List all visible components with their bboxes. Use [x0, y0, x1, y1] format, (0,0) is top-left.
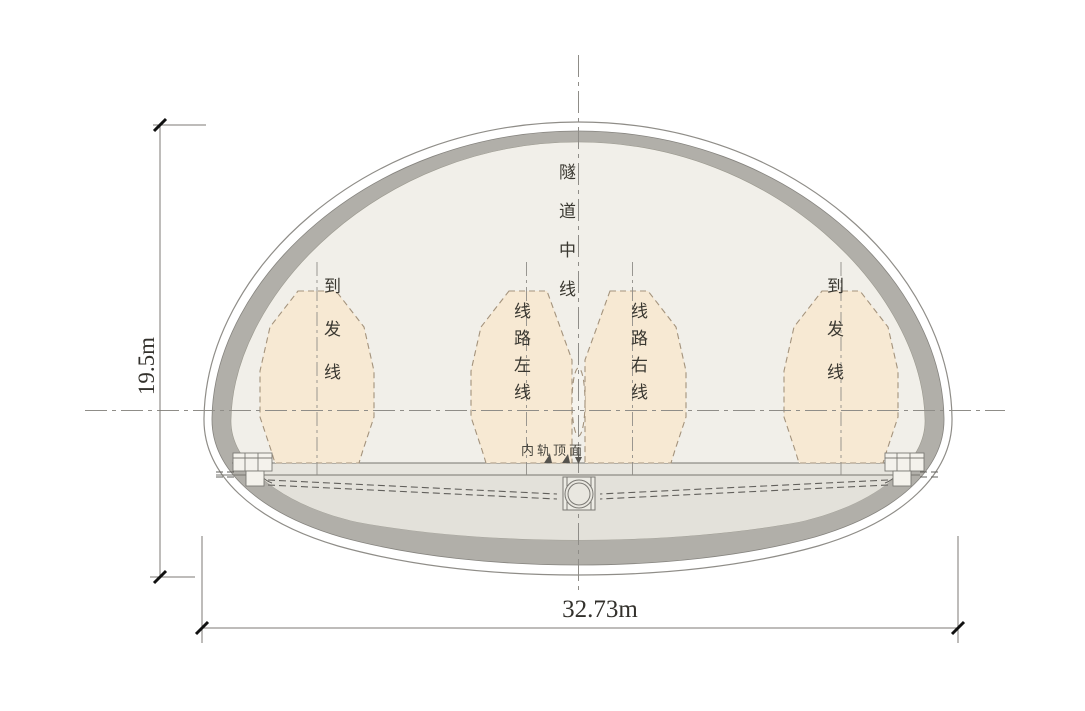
track-slab-band — [205, 463, 960, 475]
center-drain-pipe-outer — [565, 480, 593, 508]
tunnel-drawing — [0, 0, 1085, 711]
center-drain — [563, 477, 595, 510]
main-line-right-label: 线路右线 — [629, 302, 646, 410]
main-line-left-label: 线路左线 — [512, 302, 529, 410]
siding-track-right-label: 到发线 — [825, 277, 842, 406]
width-dimension-label: 32.73m — [545, 597, 655, 622]
rail-top-surface-label: 内轨顶面 — [521, 444, 585, 457]
siding-track-left-label: 到发线 — [322, 277, 339, 406]
tunnel-centerline-label: 隧道中线 — [557, 163, 574, 319]
tunnel-cross-section-diagram: 隧道中线 到发线 线路左线 线路右线 到发线 内轨顶面 19.5m 32.73m — [0, 0, 1085, 711]
height-dimension-label: 19.5m — [135, 326, 159, 406]
